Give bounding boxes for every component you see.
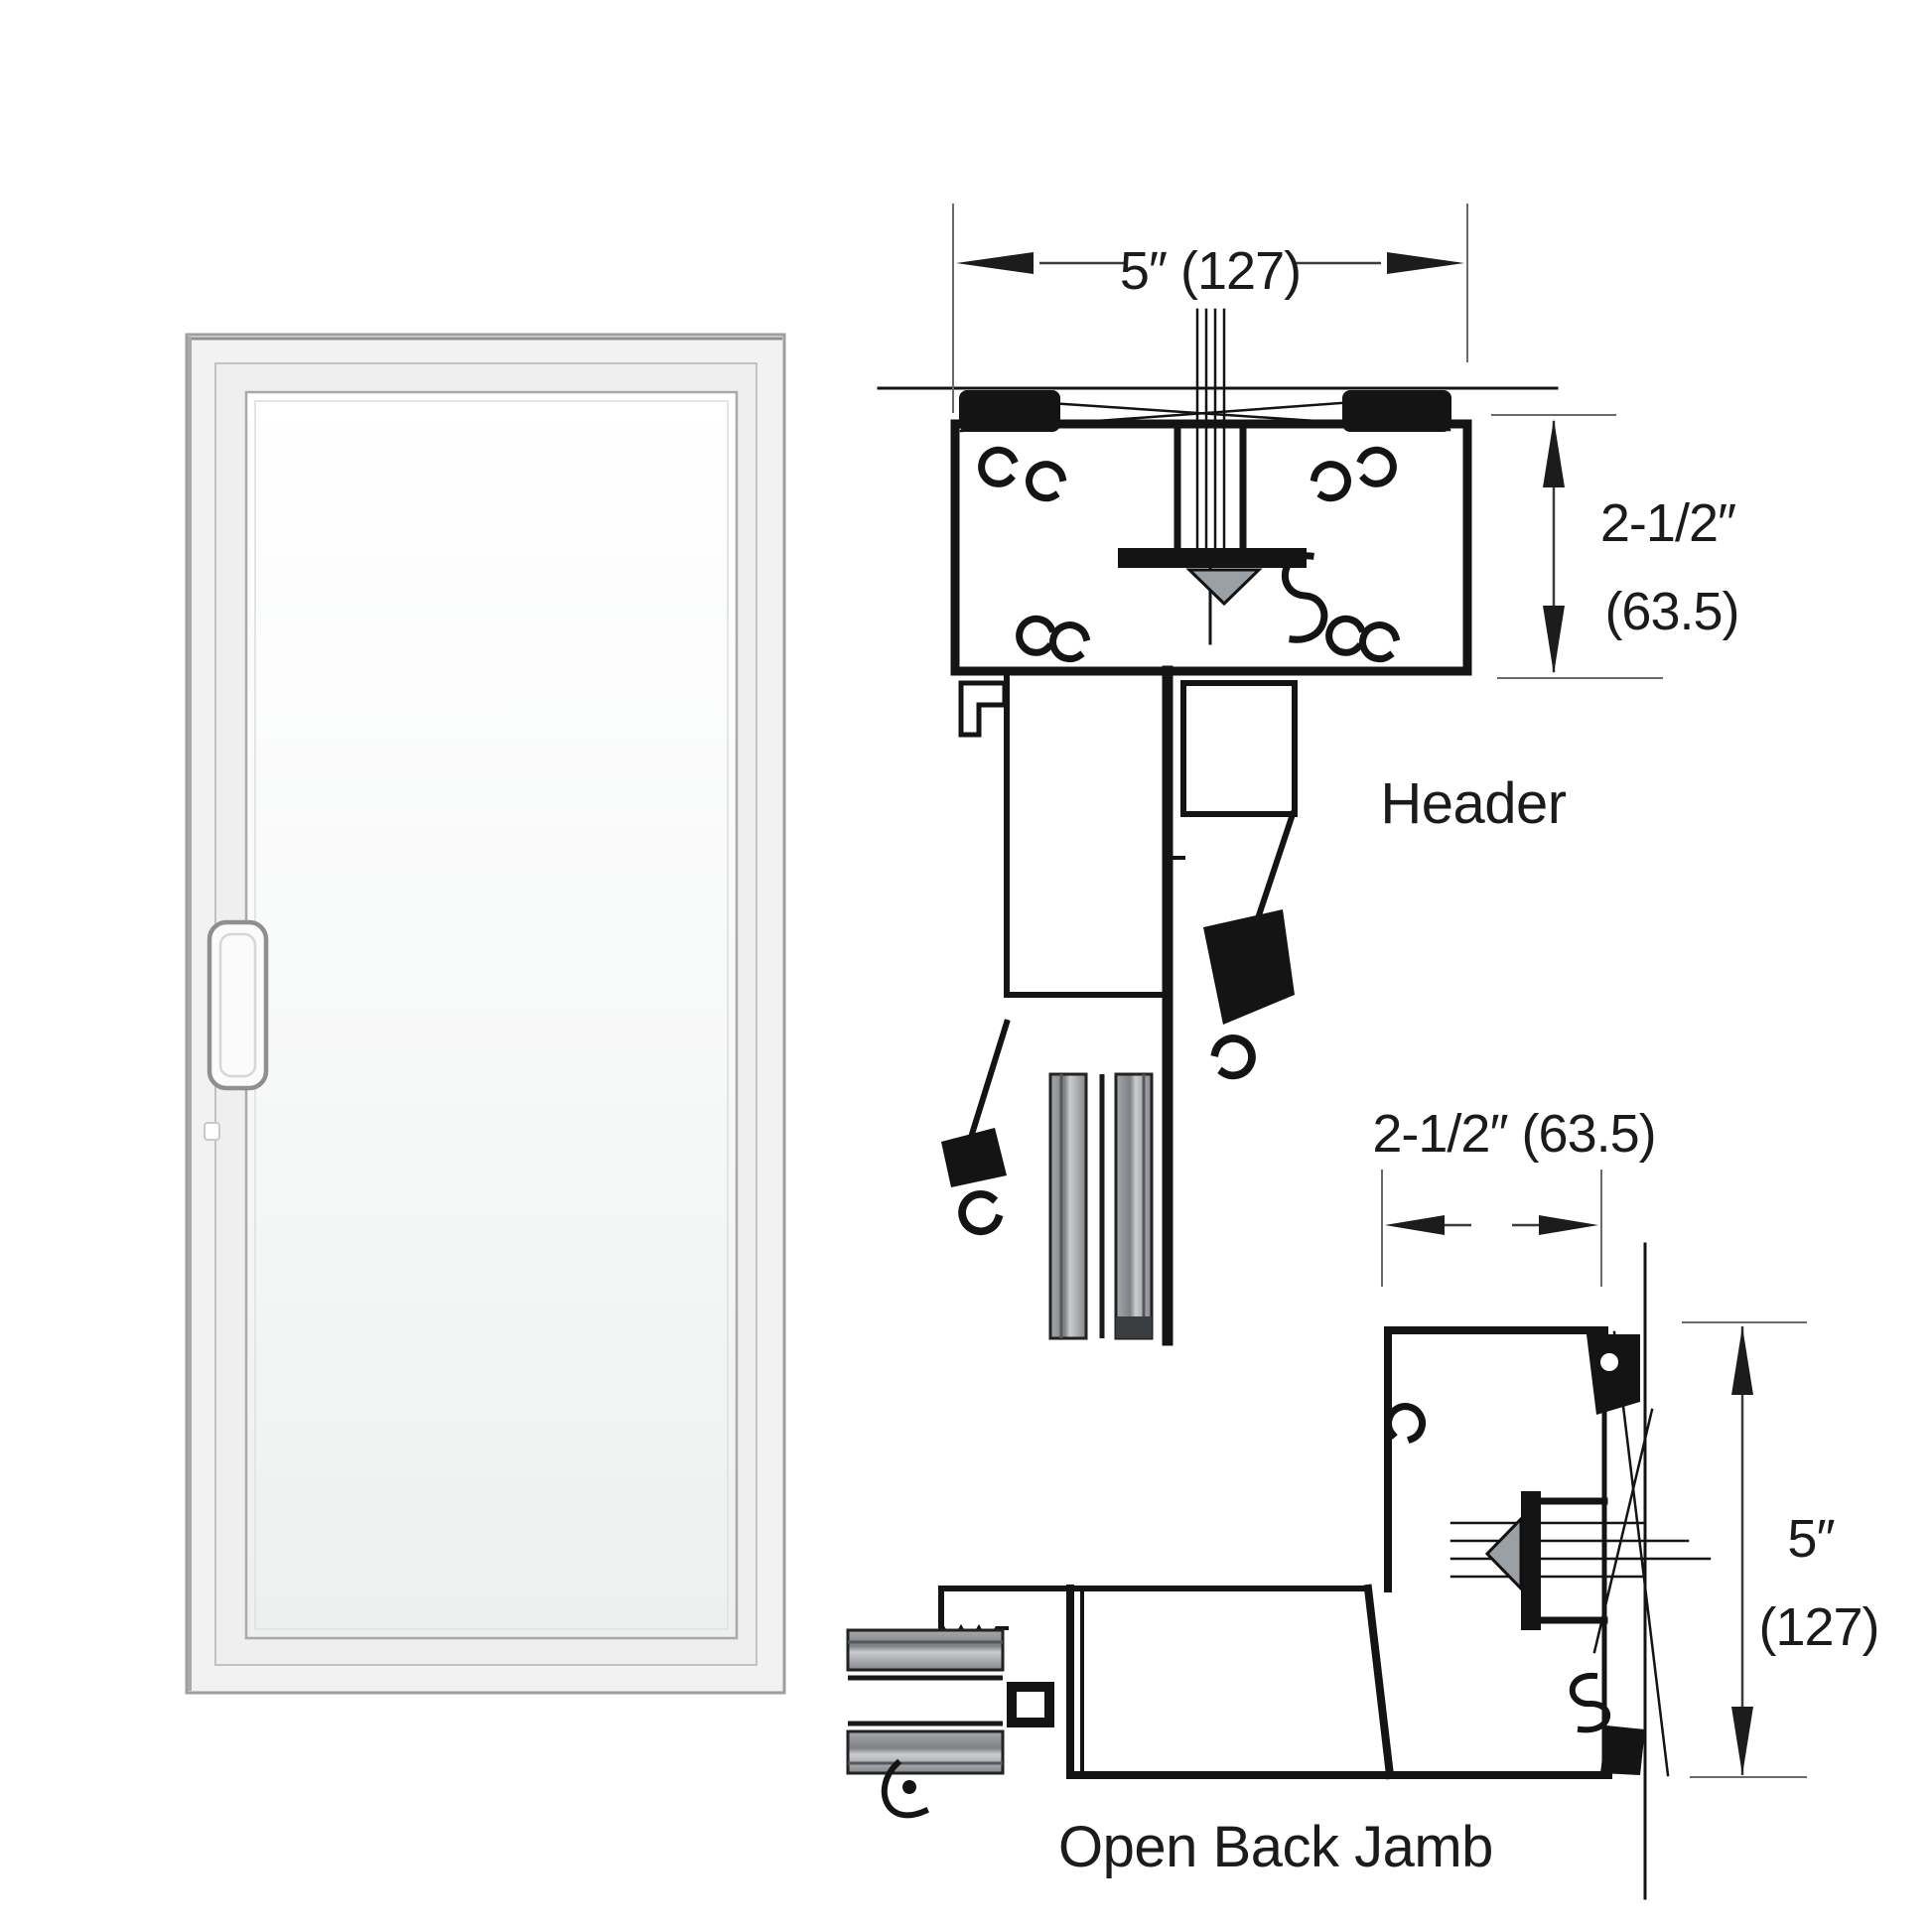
- header-section-title: Header: [1380, 771, 1566, 836]
- jamb-section-title: Open Back Jamb: [1058, 1815, 1493, 1879]
- glazing-wedge: [1189, 570, 1259, 604]
- door-panel-bars-vertical: [1050, 1074, 1152, 1338]
- jamb-height-dimension: 5″ (127): [1682, 1322, 1879, 1777]
- s-profile: [1285, 556, 1323, 640]
- header-right-clip: [1342, 390, 1451, 432]
- glass-stop-bar: [1521, 1491, 1541, 1630]
- jamb-width-label: 2-1/2″ (63.5): [1372, 1104, 1655, 1164]
- door-sections-diagram: 5″ (127) 2-1/2″ (63.5) Header: [0, 0, 1932, 1932]
- header-height-label-inches: 2-1/2″: [1600, 493, 1736, 553]
- header-height-dimension: 2-1/2″ (63.5): [1491, 415, 1739, 678]
- glazing-wedge: [1487, 1519, 1521, 1588]
- figure-canvas: 5″ (127) 2-1/2″ (63.5) Header: [0, 0, 1932, 1932]
- header-width-dimension: 5″ (127): [953, 204, 1467, 413]
- door-lock-dot: [205, 1123, 219, 1140]
- door-panel-bars-horizontal: [848, 1630, 1054, 1815]
- jamb-top-clip-hole: [1600, 1353, 1618, 1371]
- header-height-label-mm: (63.5): [1604, 582, 1738, 641]
- door-pull-handle: [209, 922, 266, 1088]
- header-width-label: 5″ (127): [1120, 241, 1301, 301]
- header-left-clip: [959, 390, 1060, 432]
- jamb-section-drawing: 2-1/2″ (63.5) 5″ (127) Open Back Jamb: [848, 1104, 1879, 1898]
- jamb-bottom-clip: [1600, 1725, 1645, 1775]
- glass-stop-bar: [1118, 548, 1307, 568]
- door-photo: [187, 335, 784, 1693]
- jamb-height-label-mm: (127): [1758, 1597, 1878, 1657]
- header-section-drawing: 5″ (127) 2-1/2″ (63.5) Header: [879, 204, 1739, 1340]
- door-glass: [246, 392, 737, 1638]
- jamb-height-label-inches: 5″: [1787, 1509, 1835, 1569]
- jamb-width-dimension: 2-1/2″ (63.5): [1372, 1104, 1655, 1287]
- jamb-top-clip: [1587, 1334, 1640, 1415]
